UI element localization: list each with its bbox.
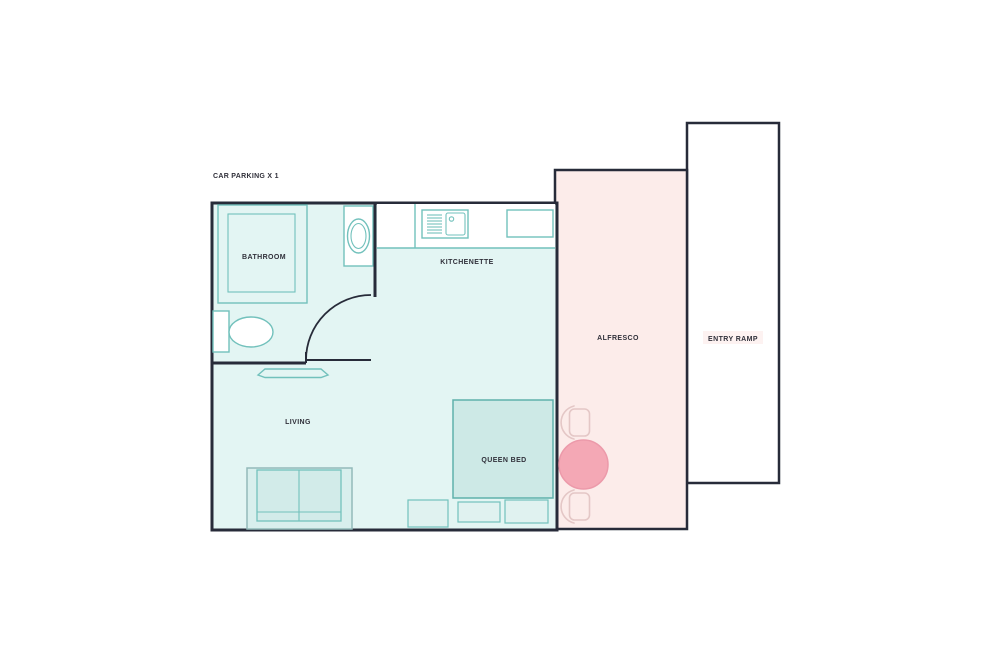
round-table [559,440,608,489]
queen-bed [453,400,553,498]
floor-plan-page: ENTRY RAMP ALFRESCO KITCHENETTE [0,0,992,661]
living-label: LIVING [285,419,311,426]
sofa [247,468,352,529]
bathroom-label: BATHROOM [242,254,286,261]
side-table [408,500,448,527]
car-parking-note: CAR PARKING X 1 [213,173,279,180]
queen-bed-label: QUEEN BED [481,457,526,464]
entry-ramp-area: ENTRY RAMP [687,123,779,483]
kitchenette-label: KITCHENETTE [440,259,493,266]
floor-plan-canvas: ENTRY RAMP ALFRESCO KITCHENETTE [0,0,992,661]
alfresco-label: ALFRESCO [597,335,639,342]
bed-end-table-right [505,500,548,523]
entry-ramp-outline [687,123,779,483]
kitchen-bench [507,210,553,237]
entry-ramp-label: ENTRY RAMP [708,336,758,343]
sink-drainer-hatch [427,215,442,233]
bed-end-table-left [458,502,500,522]
toilet-cistern [213,311,229,352]
toilet-bowl [229,317,273,347]
tv-unit [258,369,328,378]
